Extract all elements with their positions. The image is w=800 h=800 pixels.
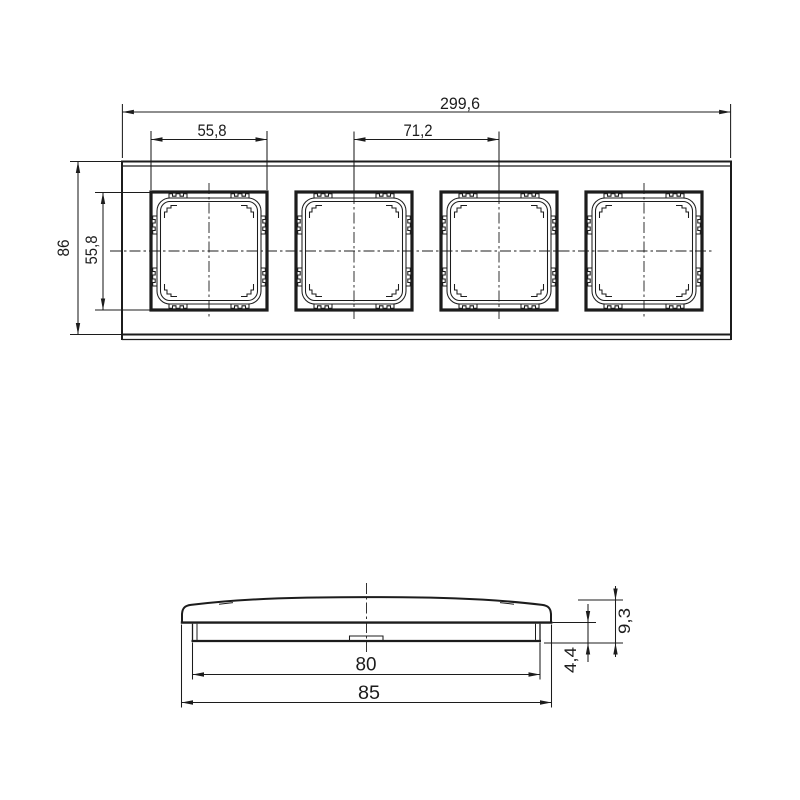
dim-label-inner-width: 80 [356,655,377,676]
cover-profile [181,583,553,652]
dim-label-opening-width: 55,8 [198,122,227,140]
dim-opening-width: 55,8 [151,122,267,190]
dim-base-height: 4,4 [553,604,597,673]
side-view: 80 85 9,3 4,4 [181,583,634,708]
front-view: 299,6 55,8 71,2 86 [55,95,731,340]
dim-label-frame-height: 86 [55,240,73,257]
dim-label-outer-width: 85 [358,683,380,704]
dim-center-spacing: 71,2 [354,122,499,193]
dim-total-height: 9,3 [544,586,634,657]
drawing-canvas: 299,6 55,8 71,2 86 [0,0,800,800]
dim-label-center-spacing: 71,2 [404,122,433,140]
dim-label-opening-height: 55,8 [83,236,101,265]
dim-label-total-width: 299,6 [440,95,480,113]
dim-label-total-height: 9,3 [616,608,634,634]
dim-label-base-height: 4,4 [562,647,580,673]
technical-drawing-svg: 299,6 55,8 71,2 86 [0,0,800,800]
